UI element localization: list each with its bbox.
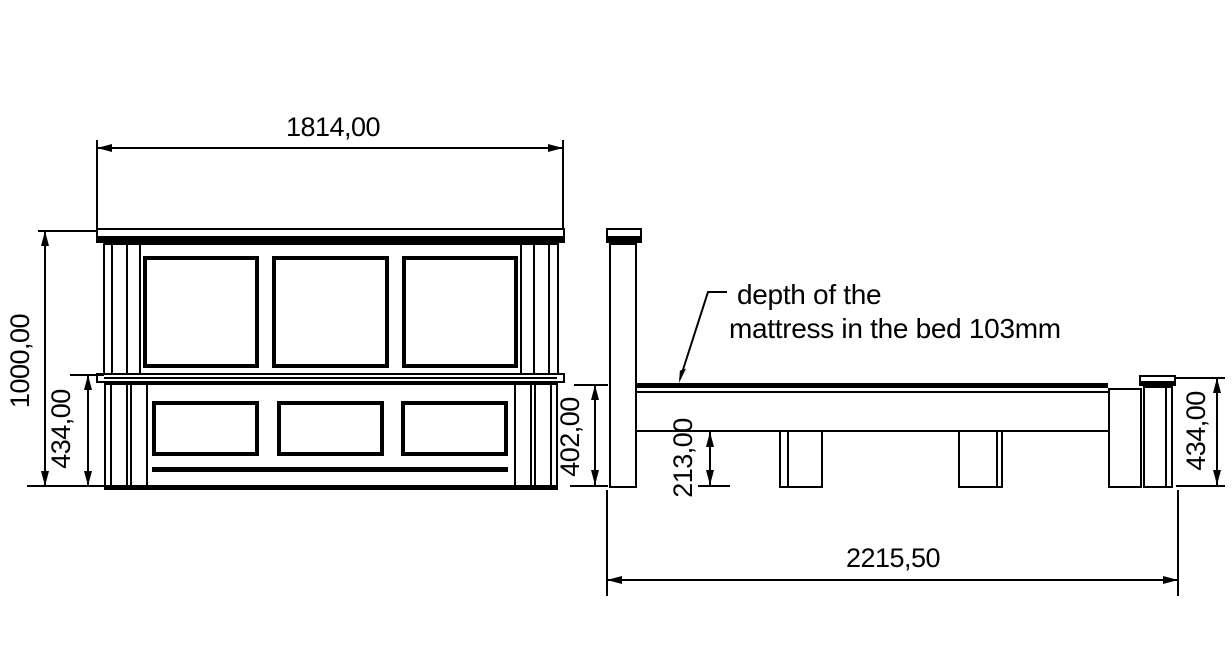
dim-footboard-height-label: 434,00 bbox=[46, 346, 76, 512]
dimension-line bbox=[87, 375, 89, 486]
bed-leg bbox=[779, 430, 823, 488]
dim-arrow-icon bbox=[84, 471, 92, 486]
platform-under-line bbox=[637, 391, 1108, 393]
dim-arrow-icon bbox=[591, 385, 599, 400]
headboard-post-stripe bbox=[548, 245, 550, 373]
dimension-line bbox=[1216, 378, 1218, 485]
footboard-post-stripe bbox=[530, 385, 532, 485]
dim-length-label: 2215,50 bbox=[810, 543, 976, 573]
headboard-panel bbox=[143, 256, 259, 368]
footboard-bottom-rail bbox=[152, 467, 508, 472]
footboard-post-stripe bbox=[550, 385, 552, 485]
dim-arrow-icon bbox=[1213, 470, 1221, 485]
dim-arrow-icon bbox=[97, 144, 112, 152]
footboard-post-stripe bbox=[126, 385, 128, 485]
dim-arrow-icon bbox=[1213, 378, 1221, 393]
extension-line bbox=[96, 140, 98, 228]
headboard-post-cap bbox=[606, 228, 642, 243]
extension-line bbox=[562, 140, 564, 228]
footboard-rail-leg bbox=[1108, 388, 1142, 488]
headboard-panel bbox=[402, 256, 518, 368]
footboard-post bbox=[1143, 386, 1173, 488]
footboard-post-edge-line bbox=[1165, 388, 1167, 486]
dim-platform-height-label: 402,00 bbox=[555, 354, 585, 520]
dim-arrow-icon bbox=[1163, 576, 1178, 584]
footboard-cap-step bbox=[104, 377, 557, 379]
headboard-post-stripe bbox=[520, 245, 522, 373]
footboard-post-stripe bbox=[110, 385, 112, 485]
bed-technical-drawing: 1814,00 1000,00 434,00 bbox=[0, 0, 1232, 650]
dim-height-label: 1000,00 bbox=[5, 278, 35, 444]
dim-arrow-icon bbox=[607, 576, 622, 584]
dim-clearance-label: 213,00 bbox=[668, 375, 698, 541]
footboard-panel bbox=[152, 401, 259, 456]
footboard-post-cap bbox=[1139, 375, 1176, 386]
extension-line bbox=[698, 485, 730, 487]
footboard-post-stripe bbox=[130, 385, 132, 485]
footboard-post-stripe bbox=[146, 385, 148, 485]
dimension-line bbox=[607, 579, 1178, 581]
headboard-post bbox=[609, 243, 637, 488]
footboard-post-stripe bbox=[514, 385, 516, 485]
dim-arrow-icon bbox=[706, 432, 714, 447]
dim-arrow-icon bbox=[548, 144, 563, 152]
footboard-panel bbox=[277, 401, 384, 456]
annotation-text-line2: mattress in the bed 103mm bbox=[729, 313, 1061, 345]
footboard-post-stripe bbox=[534, 385, 536, 485]
bed-leg-edge-line bbox=[787, 432, 789, 486]
headboard-post-stripe bbox=[533, 245, 535, 373]
headboard-post-stripe bbox=[126, 245, 128, 373]
headboard-post-stripe bbox=[139, 245, 141, 373]
annotation-text-line1: depth of the bbox=[737, 279, 881, 311]
dim-width-label: 1814,00 bbox=[250, 112, 416, 142]
leader-line bbox=[664, 284, 734, 389]
dim-arrow-icon bbox=[591, 470, 599, 485]
bed-leg-edge-line bbox=[996, 432, 998, 486]
headboard-panel bbox=[272, 256, 389, 368]
headboard-cap bbox=[96, 228, 565, 243]
dimension-line bbox=[97, 147, 563, 149]
footboard-panel bbox=[401, 401, 508, 456]
dim-arrow-icon bbox=[84, 375, 92, 390]
headboard-post-stripe bbox=[111, 245, 113, 373]
dim-side-footboard-height-label: 434,00 bbox=[1181, 348, 1211, 514]
dim-arrow-icon bbox=[706, 470, 714, 485]
dim-arrow-icon bbox=[41, 231, 49, 246]
